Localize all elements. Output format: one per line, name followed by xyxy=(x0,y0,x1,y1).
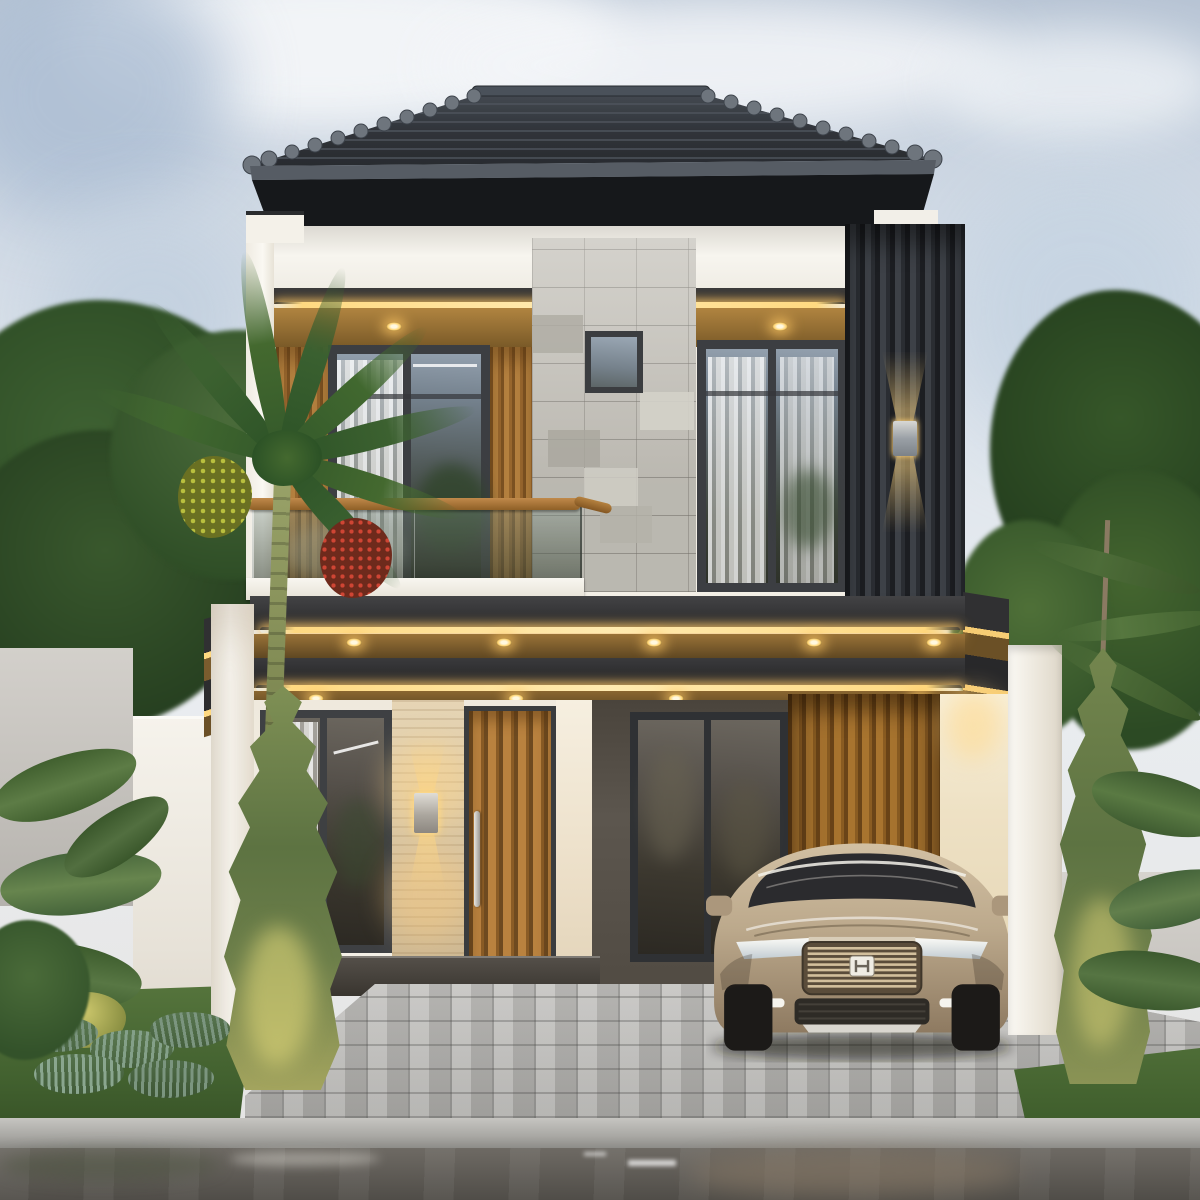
wall-white-jamb xyxy=(556,700,592,990)
curb xyxy=(0,1118,1200,1148)
downlight xyxy=(646,638,662,647)
roof-ridge xyxy=(472,86,710,96)
door-slats xyxy=(469,711,551,983)
downlight-wash xyxy=(946,690,1002,760)
stone-window xyxy=(585,331,643,393)
canopy-fascia xyxy=(250,596,965,630)
pillar-right xyxy=(1008,645,1062,1035)
stone-tile xyxy=(640,392,694,430)
downlight xyxy=(772,322,788,331)
downlight xyxy=(806,638,822,647)
downlight xyxy=(496,638,512,647)
stone-tile xyxy=(533,315,583,353)
window-transom xyxy=(706,391,838,396)
wood-soffit xyxy=(250,634,965,658)
road-reflection-highlight xyxy=(628,1160,676,1166)
downlight xyxy=(346,638,362,647)
stone-tile xyxy=(548,430,600,467)
wall-sconce xyxy=(893,421,917,456)
window-pane xyxy=(776,349,838,583)
conifer-highlight xyxy=(244,926,314,1066)
window-pane xyxy=(706,349,768,583)
parapet-left xyxy=(246,211,304,243)
light-streak xyxy=(333,740,378,754)
downlight xyxy=(926,638,942,647)
roof-fascia xyxy=(252,174,934,234)
car xyxy=(706,833,1018,1063)
window-pane xyxy=(638,720,704,954)
canopy-fascia xyxy=(250,658,965,688)
entry-sconce xyxy=(414,793,438,833)
tree-reflection xyxy=(646,750,696,860)
car-wheel xyxy=(724,984,772,1050)
road-reflection-highlight xyxy=(584,1152,606,1156)
chrome-skid-plate xyxy=(803,1024,922,1032)
exterior-render xyxy=(0,0,1200,1200)
door-handle xyxy=(474,811,480,907)
led-strip xyxy=(260,627,960,633)
tree-reflection xyxy=(335,798,381,888)
downlight xyxy=(386,322,402,331)
window-2f-right xyxy=(697,340,847,592)
car-wheel xyxy=(952,984,1000,1050)
window-mullion xyxy=(768,349,776,583)
car-mirror xyxy=(706,896,732,916)
entry-door xyxy=(464,706,556,988)
curtain-rod-highlight xyxy=(413,364,477,367)
window-pane xyxy=(327,718,384,945)
